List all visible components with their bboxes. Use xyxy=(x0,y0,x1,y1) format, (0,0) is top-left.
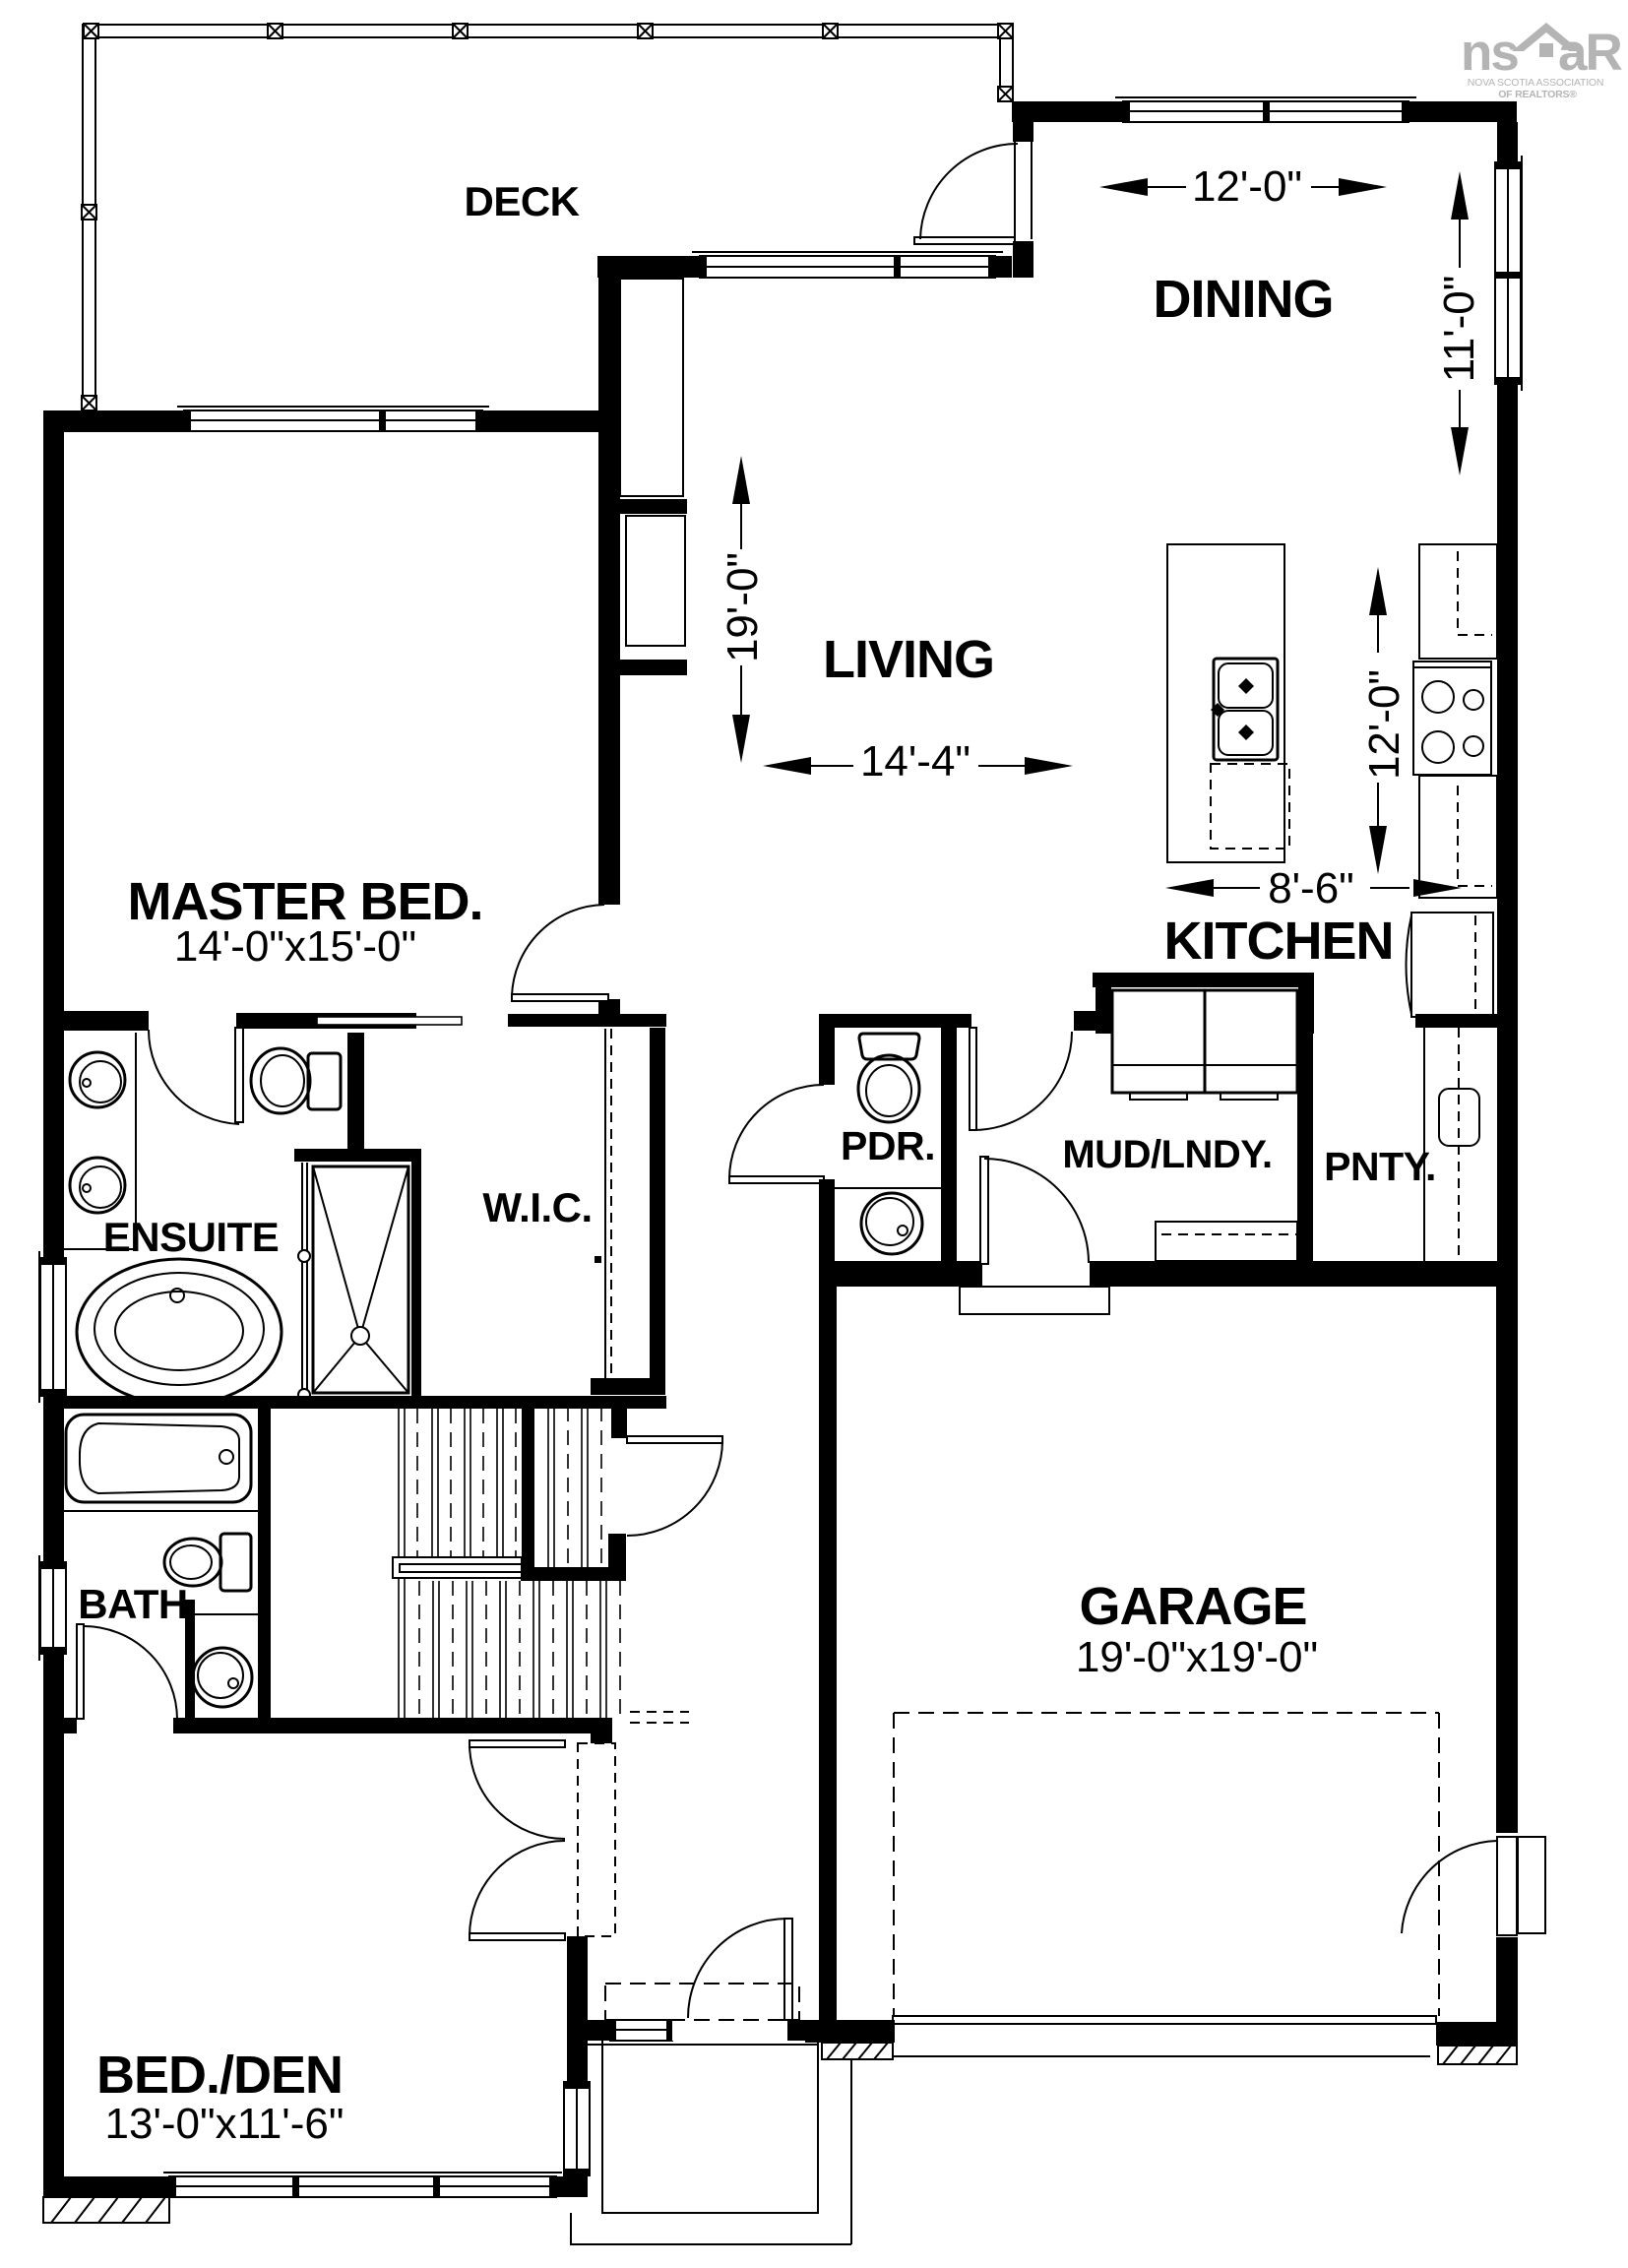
svg-text:BATH: BATH xyxy=(78,1581,188,1627)
svg-text:PNTY.: PNTY. xyxy=(1324,1144,1436,1189)
svg-text:ENSUITE: ENSUITE xyxy=(103,1214,280,1260)
svg-text:DECK: DECK xyxy=(464,178,579,224)
svg-text:W.I.C.: W.I.C. xyxy=(482,1184,592,1230)
svg-text:DINING: DINING xyxy=(1154,270,1334,329)
svg-text:GARAGE: GARAGE xyxy=(1079,1577,1306,1636)
svg-text:14'-0"x15'-0": 14'-0"x15'-0" xyxy=(174,922,416,971)
svg-text:12'-0": 12'-0" xyxy=(1192,162,1302,211)
svg-text:NOVA SCOTIA ASSOCIATION: NOVA SCOTIA ASSOCIATION xyxy=(1468,77,1604,89)
svg-text:PDR.: PDR. xyxy=(841,1123,935,1168)
svg-text:MUD/LNDY.: MUD/LNDY. xyxy=(1062,1133,1272,1176)
svg-text:19'-0": 19'-0" xyxy=(719,552,767,662)
svg-text:14'-4": 14'-4" xyxy=(860,737,971,786)
svg-text:11'-0": 11'-0" xyxy=(1435,276,1483,383)
svg-text:8'-6": 8'-6" xyxy=(1268,864,1354,913)
svg-text:KITCHEN: KITCHEN xyxy=(1164,912,1394,971)
svg-text:12'-0": 12'-0" xyxy=(1360,669,1409,780)
svg-text:OF REALTORS®: OF REALTORS® xyxy=(1498,89,1577,100)
svg-text:aR: aR xyxy=(1558,24,1622,82)
svg-text:19'-0"x19'-0": 19'-0"x19'-0" xyxy=(1076,1633,1318,1681)
svg-text:BED./DEN: BED./DEN xyxy=(96,2046,343,2105)
svg-text:13'-0"x11'-6": 13'-0"x11'-6" xyxy=(105,2100,344,2148)
svg-text:ns: ns xyxy=(1461,24,1518,82)
svg-text:LIVING: LIVING xyxy=(823,630,994,689)
